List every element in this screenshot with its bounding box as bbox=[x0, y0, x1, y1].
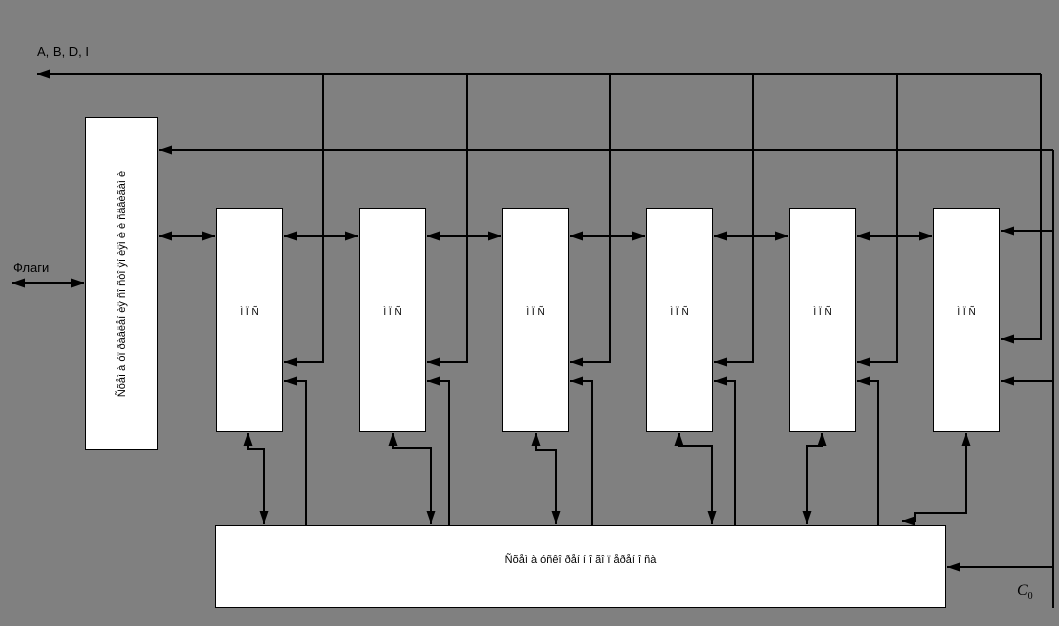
wire-mps4-carrybox bbox=[679, 433, 712, 524]
carry-lookahead-label: Ñõåì à óñêî ðåí í î ãî ï åðåí î ñà bbox=[216, 554, 945, 566]
wire-mps3-carrybox bbox=[536, 433, 556, 524]
mps-section-3: Ì Ï Ñ bbox=[502, 208, 569, 432]
wire-top-bus-drop-1-end-arrowhead bbox=[284, 358, 297, 367]
wire-top-bus-drop-3 bbox=[570, 74, 610, 362]
mps-section-1: Ì Ï Ñ bbox=[216, 208, 283, 432]
mps-section-2: Ì Ï Ñ bbox=[359, 208, 426, 432]
wire-shift-link-0-start-arrowhead bbox=[159, 232, 172, 241]
wire-mps5-carrybox-end-arrowhead bbox=[803, 511, 812, 524]
mps-section-5: Ì Ï Ñ bbox=[789, 208, 856, 432]
wire-mps1-carrybox-end-arrowhead bbox=[260, 511, 269, 524]
mps-section-3-label: Ì Ï Ñ bbox=[503, 307, 568, 318]
wire-mps2-carrybox-start-arrowhead bbox=[389, 433, 398, 446]
wire-shift-link-3-end-arrowhead bbox=[632, 232, 645, 241]
wire-top-bus-drop-2 bbox=[427, 74, 467, 362]
wire-mps1-carrybox-start-arrowhead bbox=[244, 433, 253, 446]
wire-top-bus-drop-5-end-arrowhead bbox=[857, 358, 870, 367]
wire-mps5-carrybox-start-arrowhead bbox=[818, 433, 827, 446]
wire-top-bus-end-arrowhead bbox=[37, 70, 50, 79]
wire-carry-in-end-arrowhead bbox=[947, 563, 960, 572]
wire-shift-link-1-start-arrowhead bbox=[284, 232, 297, 241]
wire-carry-up-5 bbox=[857, 381, 878, 525]
wire-top-bus-drop-4-end-arrowhead bbox=[714, 358, 727, 367]
flags-label: Флаги bbox=[13, 260, 49, 275]
wire-shift-bus-end-arrowhead bbox=[159, 146, 172, 155]
carry-in-label: C0 bbox=[1017, 582, 1033, 602]
wire-mps2-carrybox bbox=[393, 433, 431, 524]
wire-carry-up-1 bbox=[284, 381, 306, 525]
wire-mps6-carrybox-start-arrowhead bbox=[962, 433, 971, 446]
wire-branch-mps6-lower-end-arrowhead bbox=[1001, 377, 1014, 386]
wire-mps3-carrybox-start-arrowhead bbox=[532, 433, 541, 446]
wire-top-bus-drop-3-end-arrowhead bbox=[570, 358, 583, 367]
wire-shift-link-3-start-arrowhead bbox=[570, 232, 583, 241]
wire-top-bus-drop-6 bbox=[1001, 74, 1041, 339]
wire-carry-up-4 bbox=[714, 381, 735, 525]
wire-top-bus-drop-4 bbox=[714, 74, 753, 362]
wire-carry-up-4-end-arrowhead bbox=[714, 377, 727, 386]
mps-section-4: Ì Ï Ñ bbox=[646, 208, 713, 432]
wire-shift-link-4-end-arrowhead bbox=[775, 232, 788, 241]
bus-label: A, B, D, I bbox=[37, 44, 89, 59]
wire-branch-mps6-upper-end-arrowhead bbox=[1001, 227, 1014, 236]
wire-mps4-carrybox-start-arrowhead bbox=[675, 433, 684, 446]
wire-carry-up-3 bbox=[570, 381, 592, 525]
wire-top-bus-drop-6-end-arrowhead bbox=[1001, 335, 1014, 344]
wire-mps2-carrybox-end-arrowhead bbox=[427, 511, 436, 524]
state-shift-control-label: Ñõåì à óï ðàâëåí èÿ ñî ñòî ÿí èÿì è è ñä… bbox=[116, 170, 128, 396]
wire-shift-link-0-end-arrowhead bbox=[202, 232, 215, 241]
wire-carry-up-2 bbox=[427, 381, 449, 525]
wire-mps1-carrybox bbox=[248, 433, 264, 524]
wire-flags-start-arrowhead bbox=[12, 279, 25, 288]
wire-mps5-carrybox bbox=[807, 433, 822, 524]
mps-section-2-label: Ì Ï Ñ bbox=[360, 307, 425, 318]
mps-section-5-label: Ì Ï Ñ bbox=[790, 307, 855, 318]
wire-carry-up-2-end-arrowhead bbox=[427, 377, 440, 386]
carry-lookahead-box: Ñõåì à óñêî ðåí í î ãî ï åðåí î ñà bbox=[215, 525, 946, 608]
wire-carry-up-1-end-arrowhead bbox=[284, 377, 297, 386]
wire-top-bus-drop-2-end-arrowhead bbox=[427, 358, 440, 367]
wire-shift-link-1-end-arrowhead bbox=[345, 232, 358, 241]
wire-shift-link-4-start-arrowhead bbox=[714, 232, 727, 241]
mps-section-6-label: Ì Ï Ñ bbox=[934, 307, 999, 318]
mps-section-6: Ì Ï Ñ bbox=[933, 208, 1000, 432]
wire-top-bus-drop-5 bbox=[857, 74, 897, 362]
wire-mps3-carrybox-end-arrowhead bbox=[552, 511, 561, 524]
wire-carry-up-3-end-arrowhead bbox=[570, 377, 583, 386]
wire-shift-link-5-start-arrowhead bbox=[857, 232, 870, 241]
diagram-canvas: A, B, D, I Флаги Ñõåì à óï ðàâëåí èÿ ñî … bbox=[0, 0, 1059, 626]
wire-shift-link-2-start-arrowhead bbox=[427, 232, 440, 241]
wire-mps4-carrybox-end-arrowhead bbox=[708, 511, 717, 524]
wire-top-bus-drop-1 bbox=[284, 74, 323, 362]
mps-section-4-label: Ì Ï Ñ bbox=[647, 307, 712, 318]
mps-section-1-label: Ì Ï Ñ bbox=[217, 307, 282, 318]
wire-flags-end-arrowhead bbox=[71, 279, 84, 288]
wire-shift-link-2-end-arrowhead bbox=[488, 232, 501, 241]
wire-shift-link-5-end-arrowhead bbox=[919, 232, 932, 241]
wire-mps6-carrybox bbox=[902, 433, 966, 521]
state-shift-control-box: Ñõåì à óï ðàâëåí èÿ ñî ñòî ÿí èÿì è è ñä… bbox=[85, 117, 158, 450]
wire-carry-up-5-end-arrowhead bbox=[857, 377, 870, 386]
